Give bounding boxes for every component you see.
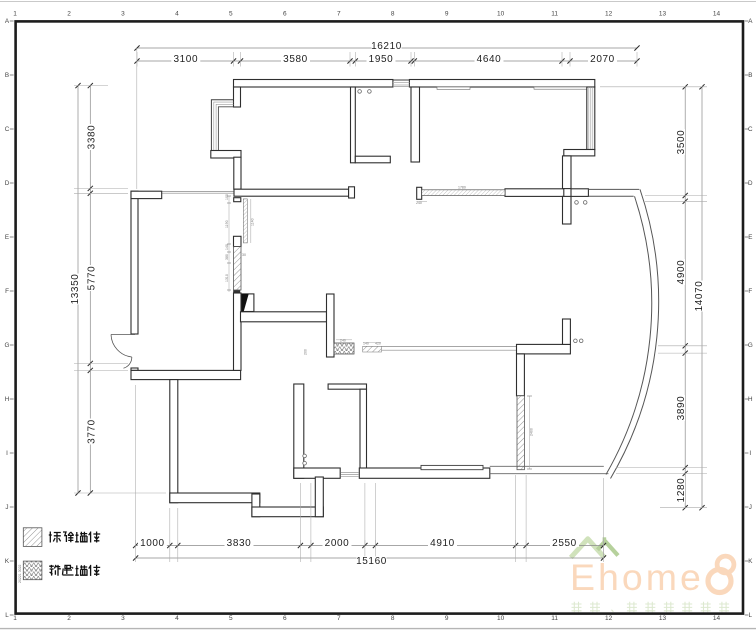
svg-text:1950: 1950 (369, 54, 394, 65)
svg-text:4: 4 (175, 615, 179, 622)
svg-text:2: 2 (67, 10, 71, 17)
svg-text:G: G (5, 342, 10, 349)
svg-text:1310: 1310 (225, 274, 229, 282)
svg-text:1280: 1280 (676, 478, 687, 503)
svg-text:1: 1 (13, 615, 17, 622)
svg-text:10: 10 (497, 615, 505, 622)
svg-text:140: 140 (225, 244, 229, 250)
svg-text:15160: 15160 (356, 556, 387, 567)
svg-text:I: I (6, 450, 8, 457)
svg-text:5770: 5770 (86, 266, 97, 291)
svg-text:F: F (748, 288, 752, 295)
svg-text:13350: 13350 (70, 274, 81, 305)
svg-text:E: E (748, 234, 752, 241)
svg-text:Ehome: Ehome (570, 556, 704, 598)
svg-text:16210: 16210 (371, 41, 402, 52)
svg-text:9: 9 (445, 10, 449, 17)
svg-text:4640: 4640 (477, 54, 502, 65)
svg-text:D: D (748, 180, 753, 187)
svg-text:30: 30 (242, 253, 246, 257)
svg-text:C: C (5, 126, 10, 133)
svg-text:2000: 2000 (325, 538, 350, 549)
svg-text:7: 7 (337, 615, 341, 622)
svg-text:12: 12 (605, 10, 613, 17)
svg-text:7: 7 (337, 10, 341, 17)
svg-text:3380: 3380 (86, 125, 97, 150)
svg-text:H: H (748, 396, 753, 403)
svg-text:L: L (5, 612, 9, 619)
svg-text:L: L (749, 612, 753, 619)
svg-text:4910: 4910 (430, 538, 455, 549)
svg-text:5: 5 (229, 10, 233, 17)
svg-text:5: 5 (229, 615, 233, 622)
svg-text:3100: 3100 (173, 54, 198, 65)
svg-text:B: B (5, 72, 9, 79)
svg-text:2070: 2070 (590, 54, 615, 65)
svg-text:3770: 3770 (86, 419, 97, 444)
svg-text:3830: 3830 (227, 538, 252, 549)
svg-text:2400: 2400 (530, 428, 534, 436)
svg-text:F: F (5, 288, 9, 295)
svg-text:8: 8 (391, 615, 395, 622)
svg-text:10: 10 (497, 10, 505, 17)
svg-text:140: 140 (363, 342, 369, 346)
svg-text:1140: 1140 (251, 218, 255, 226)
svg-text:2: 2 (67, 615, 71, 622)
svg-text:13: 13 (659, 10, 667, 17)
svg-text:11: 11 (551, 615, 558, 622)
svg-text:2550: 2550 (552, 538, 577, 549)
svg-text:14070: 14070 (694, 281, 705, 312)
svg-text:3890: 3890 (676, 396, 687, 421)
svg-text:3: 3 (121, 615, 125, 622)
svg-text:14: 14 (713, 615, 721, 622)
svg-text:240: 240 (340, 339, 346, 343)
svg-text:200: 200 (304, 349, 308, 355)
svg-text:3580: 3580 (283, 54, 308, 65)
svg-text:4900: 4900 (676, 260, 687, 285)
svg-text:6: 6 (283, 615, 287, 622)
svg-text:1190: 1190 (225, 220, 229, 228)
svg-text:J: J (5, 504, 8, 511)
svg-text:E: E (5, 234, 9, 241)
svg-text:I: I (749, 450, 751, 457)
svg-text:20221 3022: 20221 3022 (18, 564, 22, 583)
svg-text:3500: 3500 (676, 130, 687, 155)
svg-text:13: 13 (659, 615, 667, 622)
svg-text:8: 8 (391, 10, 395, 17)
svg-text:4: 4 (175, 10, 179, 17)
svg-text:9: 9 (445, 615, 449, 622)
svg-text:380: 380 (225, 254, 229, 260)
svg-text:12: 12 (605, 615, 613, 622)
svg-text:H: H (5, 396, 10, 403)
svg-text:J: J (749, 504, 752, 511)
svg-text:3: 3 (121, 10, 125, 17)
svg-text:1780: 1780 (458, 186, 466, 190)
svg-text:D: D (5, 180, 10, 187)
svg-text:11: 11 (551, 10, 558, 17)
svg-text:420: 420 (375, 342, 381, 346)
svg-text:B: B (748, 72, 752, 79)
svg-text:14: 14 (713, 10, 721, 17)
svg-text:G: G (748, 342, 753, 349)
svg-text:C: C (748, 126, 753, 133)
svg-text:1000: 1000 (140, 538, 165, 549)
svg-text:1: 1 (13, 10, 17, 17)
svg-text:100: 100 (225, 194, 229, 200)
svg-text:6: 6 (283, 10, 287, 17)
